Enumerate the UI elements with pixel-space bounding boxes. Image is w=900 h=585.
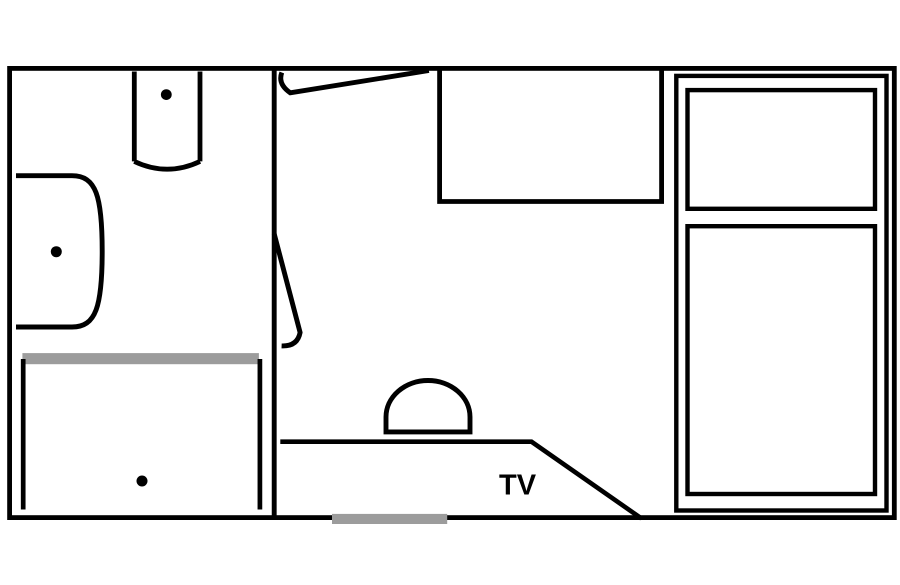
svg-text:TV: TV <box>499 470 537 502</box>
